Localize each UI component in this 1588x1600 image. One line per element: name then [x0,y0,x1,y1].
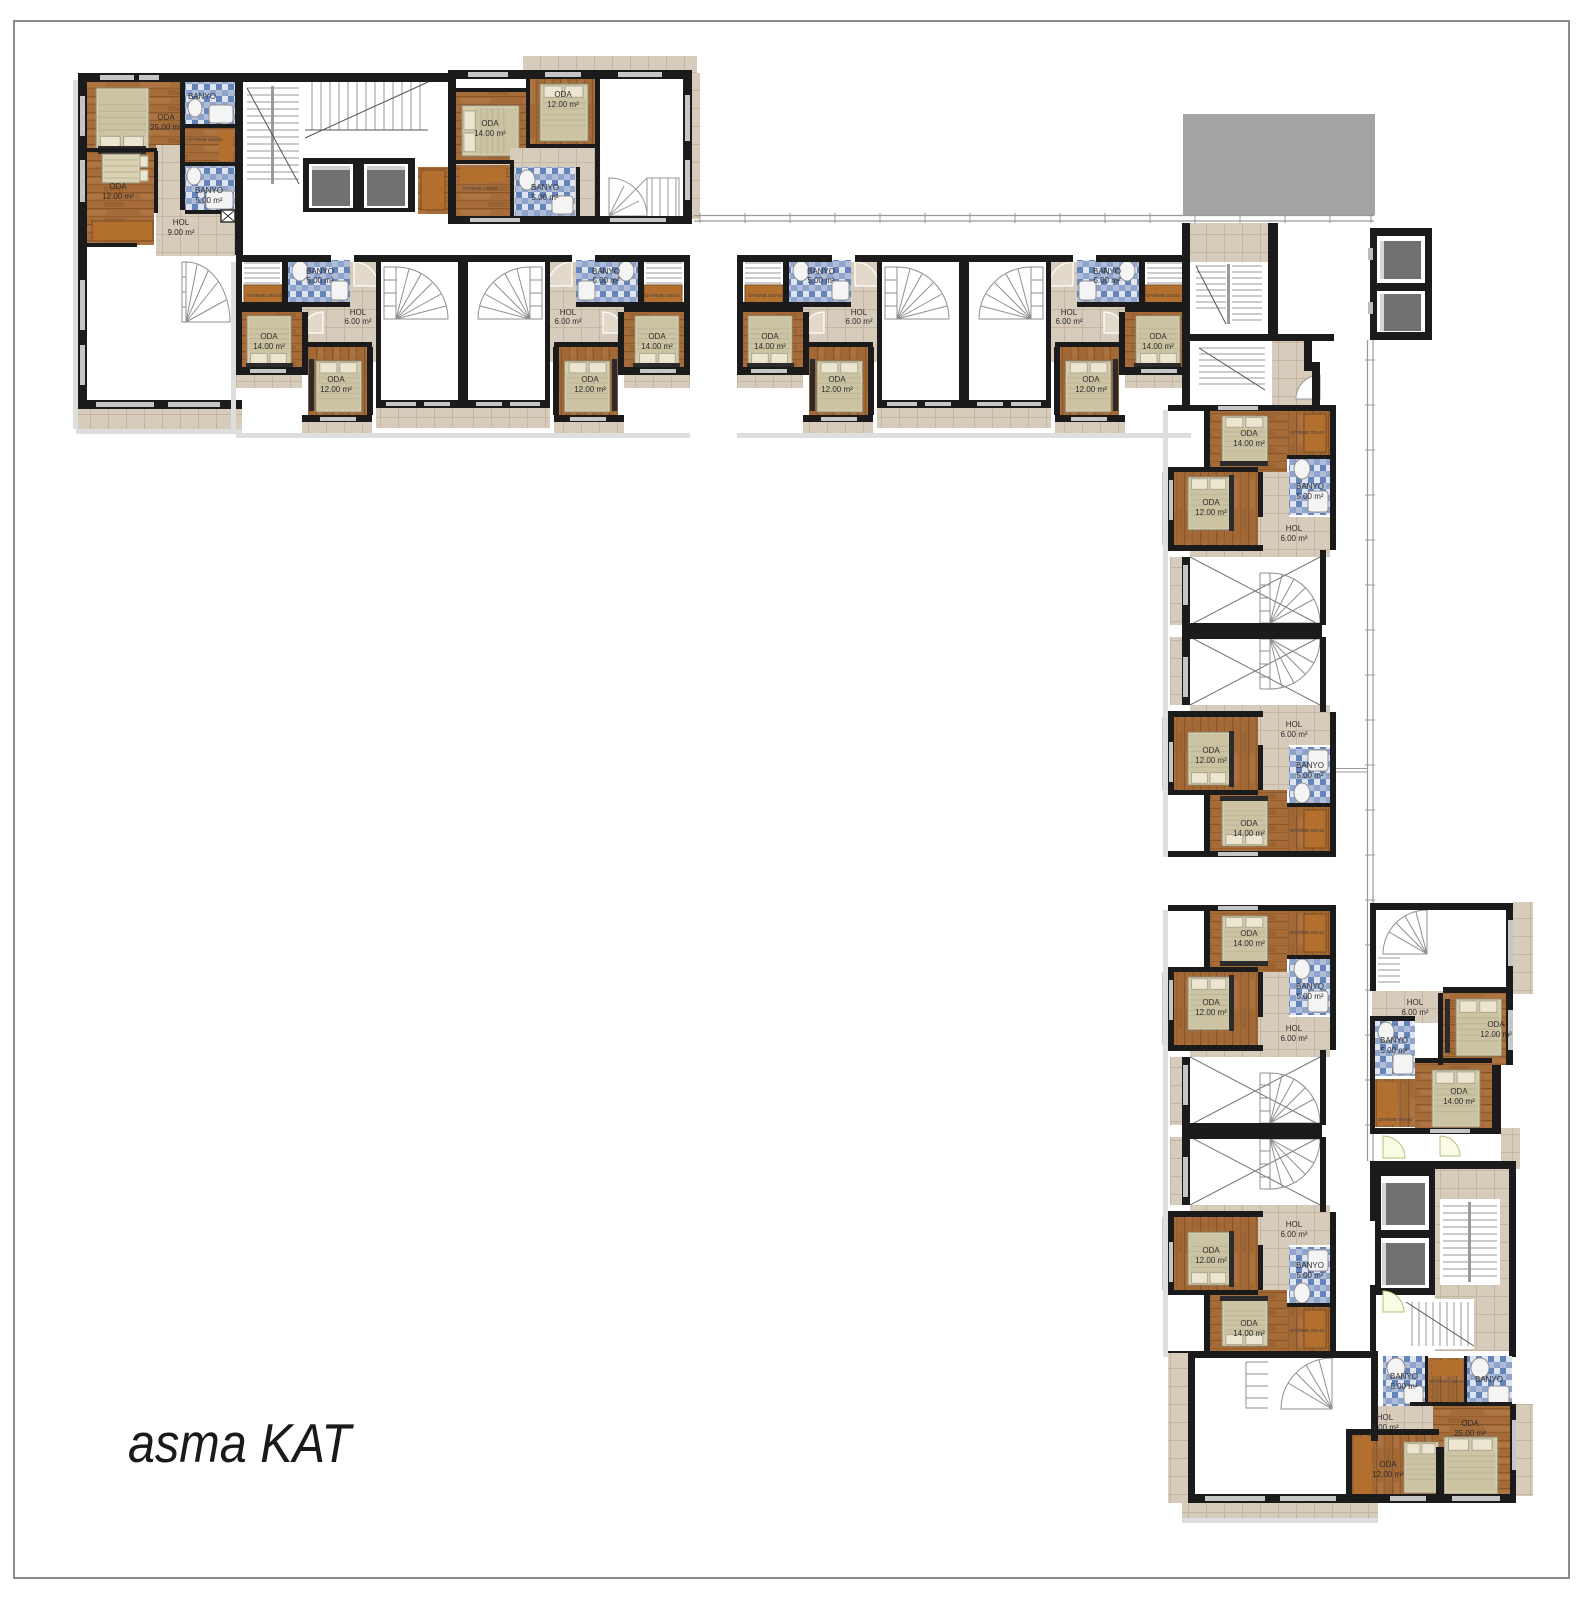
svg-text:12.00 m²: 12.00 m² [574,385,606,394]
svg-text:5.00 m²: 5.00 m² [1296,992,1323,1001]
svg-text:ODA: ODA [581,375,599,384]
svg-text:GİYİNME ODASI: GİYİNME ODASI [188,136,222,142]
svg-text:BANYO: BANYO [1093,267,1121,276]
svg-text:5.00 m²: 5.00 m² [1390,1382,1417,1391]
svg-text:HOL: HOL [560,308,577,317]
svg-text:5.00 m²: 5.00 m² [1380,1046,1407,1055]
svg-text:25.00 m²: 25.00 m² [1454,1429,1486,1438]
svg-text:5.00 m²: 5.00 m² [531,193,558,202]
svg-text:14.00 m²: 14.00 m² [1233,829,1265,838]
svg-text:12.00 m²: 12.00 m² [1480,1030,1512,1039]
svg-text:12.00 m²: 12.00 m² [1372,1470,1404,1479]
svg-text:ODA: ODA [260,332,278,341]
svg-text:BANYO: BANYO [188,92,216,101]
svg-text:ODA: ODA [648,332,666,341]
svg-text:HOL: HOL [1286,1220,1303,1229]
svg-text:HOL: HOL [1407,998,1424,1007]
svg-text:12.00 m²: 12.00 m² [1195,756,1227,765]
svg-text:ODA: ODA [109,182,127,191]
svg-text:6.00 m²: 6.00 m² [554,317,581,326]
svg-text:BANYO: BANYO [1380,1036,1408,1045]
svg-text:GİYİNME ODASI: GİYİNME ODASI [645,292,679,298]
svg-text:GİYİNME ODASI: GİYİNME ODASI [1290,1327,1324,1333]
svg-text:HOL: HOL [173,218,190,227]
svg-text:ODA: ODA [1379,1460,1397,1469]
svg-text:BANYO: BANYO [807,267,835,276]
svg-text:ODA: ODA [1202,998,1220,1007]
svg-text:GİYİNME ODASI: GİYİNME ODASI [1429,1378,1463,1384]
svg-text:GİYİNME ODASI: GİYİNME ODASI [748,292,782,298]
svg-text:HOL: HOL [1377,1413,1394,1422]
svg-text:HOL: HOL [1286,524,1303,533]
svg-text:BANYO: BANYO [1475,1375,1503,1384]
svg-text:GİYİNME ODASI: GİYİNME ODASI [1378,1116,1412,1122]
svg-text:5.00 m²: 5.00 m² [1296,771,1323,780]
svg-text:14.00 m²: 14.00 m² [253,342,285,351]
svg-text:asma KAT: asma KAT [128,1412,354,1474]
svg-text:14.00 m²: 14.00 m² [474,129,506,138]
svg-text:GİYİNME ODASI: GİYİNME ODASI [463,185,497,191]
svg-text:BANYO: BANYO [1296,1261,1324,1270]
svg-text:ODA: ODA [1149,332,1167,341]
svg-text:14.00 m²: 14.00 m² [1233,439,1265,448]
svg-text:5.00 m²: 5.00 m² [592,276,619,285]
svg-text:14.00 m²: 14.00 m² [754,342,786,351]
svg-text:GİYİNME ODASI: GİYİNME ODASI [1290,429,1324,435]
svg-text:ODA: ODA [1487,1020,1505,1029]
svg-text:5.00 m²: 5.00 m² [1296,1271,1323,1280]
svg-text:ODA: ODA [1450,1087,1468,1096]
svg-text:12.00 m²: 12.00 m² [1195,508,1227,517]
svg-text:ODA: ODA [1240,429,1258,438]
svg-text:12.00 m²: 12.00 m² [821,385,853,394]
svg-text:9.00 m²: 9.00 m² [167,228,194,237]
svg-text:ODA: ODA [1202,746,1220,755]
svg-text:BANYO: BANYO [592,267,620,276]
svg-text:ODA: ODA [761,332,779,341]
svg-text:12.00 m²: 12.00 m² [320,385,352,394]
svg-text:14.00 m²: 14.00 m² [1443,1097,1475,1106]
svg-text:ODA: ODA [554,90,572,99]
svg-text:25.00 m²: 25.00 m² [150,123,182,132]
svg-text:14.00 m²: 14.00 m² [1233,939,1265,948]
svg-text:14.00 m²: 14.00 m² [641,342,673,351]
svg-text:6.00 m²: 6.00 m² [1280,730,1307,739]
svg-text:14.00 m²: 14.00 m² [1142,342,1174,351]
svg-text:6.00 m²: 6.00 m² [845,317,872,326]
svg-text:5.00 m²: 5.00 m² [195,196,222,205]
svg-text:14.00 m²: 14.00 m² [1233,1329,1265,1338]
svg-text:ODA: ODA [1240,1319,1258,1328]
svg-text:BANYO: BANYO [1296,482,1324,491]
svg-text:BANYO: BANYO [1390,1372,1418,1381]
svg-text:6.00 m²: 6.00 m² [1280,534,1307,543]
svg-text:GİYİNME ODASI: GİYİNME ODASI [1290,929,1324,935]
svg-text:ODA: ODA [327,375,345,384]
svg-text:9.00 m²: 9.00 m² [1371,1423,1398,1432]
svg-text:ODA: ODA [157,113,175,122]
svg-text:BANYO: BANYO [1296,761,1324,770]
svg-text:ODA: ODA [1202,498,1220,507]
svg-text:ODA: ODA [1240,929,1258,938]
svg-text:ODA: ODA [828,375,846,384]
svg-text:ODA: ODA [1240,819,1258,828]
svg-text:HOL: HOL [1286,1024,1303,1033]
svg-text:12.00 m²: 12.00 m² [1195,1256,1227,1265]
svg-text:BANYO: BANYO [1296,982,1324,991]
svg-text:12.00 m²: 12.00 m² [102,192,134,201]
svg-text:BANYO: BANYO [195,186,223,195]
svg-text:ODA: ODA [481,119,499,128]
svg-text:HOL: HOL [350,308,367,317]
svg-text:5.00 m²: 5.00 m² [306,276,333,285]
svg-text:ODA: ODA [1461,1419,1479,1428]
svg-text:GİYİNME ODASI: GİYİNME ODASI [1146,292,1180,298]
svg-text:HOL: HOL [1061,308,1078,317]
svg-text:6.00 m²: 6.00 m² [1401,1008,1428,1017]
svg-text:BANYO: BANYO [531,183,559,192]
svg-text:12.00 m²: 12.00 m² [1075,385,1107,394]
svg-text:6.00 m²: 6.00 m² [1280,1034,1307,1043]
svg-text:BANYO: BANYO [306,267,334,276]
svg-text:HOL: HOL [851,308,868,317]
svg-text:HOL: HOL [1286,720,1303,729]
svg-text:GİYİNME ODASI: GİYİNME ODASI [1290,827,1324,833]
svg-text:6.00 m²: 6.00 m² [344,317,371,326]
svg-text:ODA: ODA [1082,375,1100,384]
svg-text:5.00 m²: 5.00 m² [1093,276,1120,285]
svg-text:5.00 m²: 5.00 m² [1296,492,1323,501]
svg-text:5.00 m²: 5.00 m² [807,276,834,285]
svg-text:GİYİNME ODASI: GİYİNME ODASI [247,292,281,298]
svg-text:6.00 m²: 6.00 m² [1280,1230,1307,1239]
svg-text:6.00 m²: 6.00 m² [1055,317,1082,326]
svg-text:12.00 m²: 12.00 m² [1195,1008,1227,1017]
svg-text:12.00 m²: 12.00 m² [547,100,579,109]
svg-text:ODA: ODA [1202,1246,1220,1255]
